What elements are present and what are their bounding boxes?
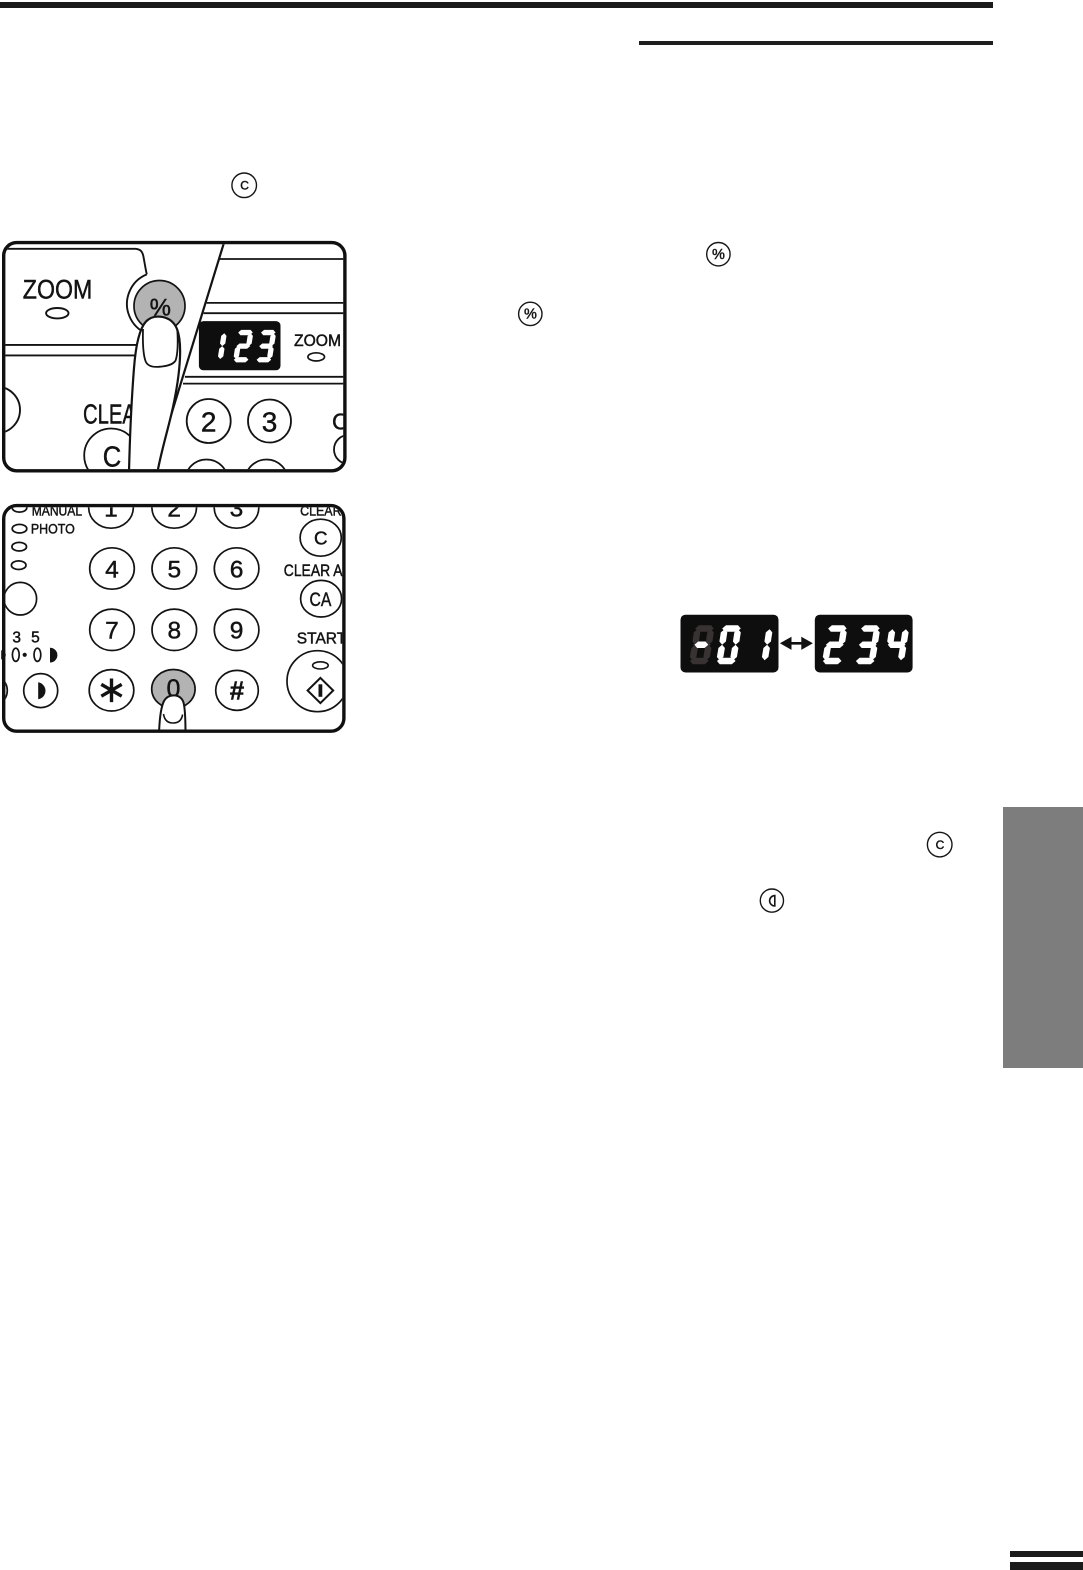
svg-text:ZOOM: ZOOM (294, 332, 341, 350)
svg-text:%: % (712, 247, 725, 263)
svg-text:3: 3 (230, 500, 244, 522)
svg-text:3: 3 (12, 629, 21, 646)
svg-text:9: 9 (230, 618, 244, 645)
svg-text:C: C (103, 442, 122, 474)
svg-text:CL: CL (332, 409, 352, 435)
svg-text:1: 1 (104, 500, 118, 522)
svg-text:CLEAR A: CLEAR A (284, 561, 343, 580)
svg-text:C: C (314, 528, 328, 549)
svg-text:2: 2 (167, 500, 181, 522)
svg-text:7: 7 (105, 618, 119, 645)
svg-text:8: 8 (167, 618, 181, 645)
svg-text:#: # (230, 676, 245, 706)
svg-text:5: 5 (31, 629, 40, 646)
svg-text:C: C (240, 178, 249, 192)
svg-text:2: 2 (201, 406, 217, 437)
svg-text:3: 3 (262, 406, 278, 437)
svg-text:START: START (297, 631, 347, 648)
svg-text:C: C (936, 838, 945, 852)
svg-text:4: 4 (105, 556, 119, 583)
svg-text:5: 5 (167, 556, 181, 583)
svg-text:PHOTO: PHOTO (31, 521, 75, 536)
svg-text:CA: CA (310, 590, 332, 611)
svg-text:%: % (524, 307, 537, 323)
svg-text:6: 6 (230, 556, 244, 583)
svg-text:ZOOM: ZOOM (23, 274, 93, 304)
